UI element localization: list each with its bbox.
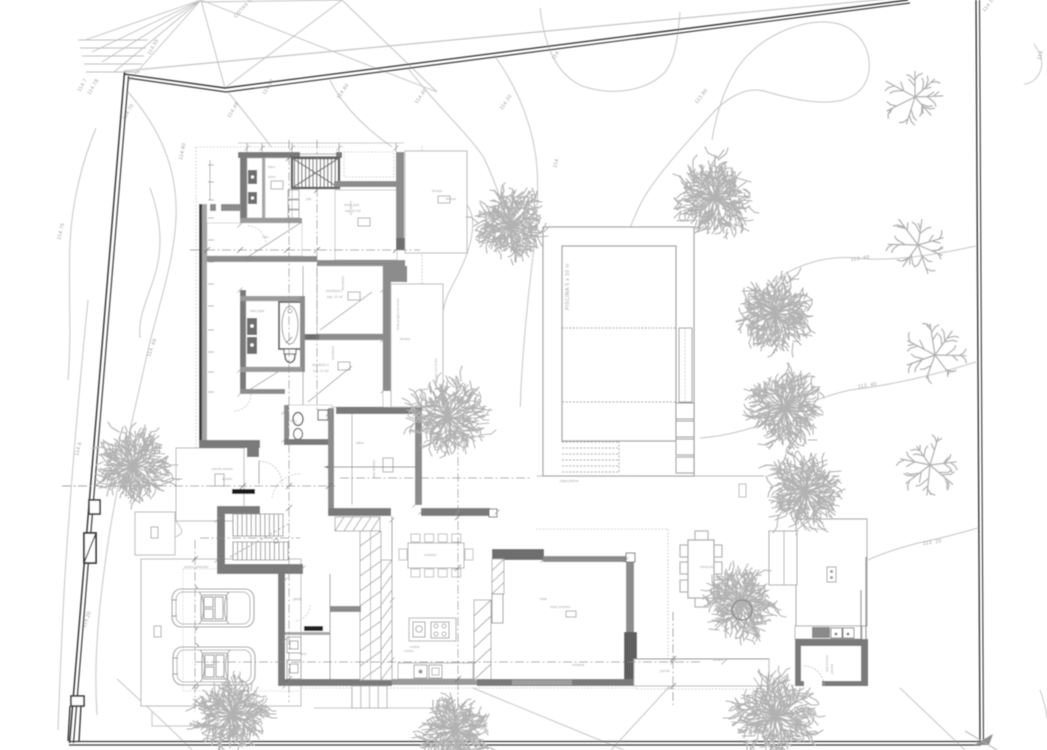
svg-text:terraza: terraza	[713, 658, 723, 662]
svg-text:garaje: garaje	[293, 597, 302, 601]
svg-text:cocina: cocina	[404, 649, 413, 653]
svg-text:dormitorio 2: dormitorio 2	[326, 289, 343, 293]
svg-text:salon: salon	[356, 441, 364, 445]
svg-text:linea proyeccion techo: linea proyeccion techo	[396, 298, 400, 330]
svg-text:pas.: pas.	[306, 197, 312, 201]
svg-text:estar: estar	[540, 597, 548, 601]
svg-text:terraza: terraza	[432, 189, 442, 193]
svg-text:zona bbq: zona bbq	[812, 527, 825, 531]
svg-text:acceso: acceso	[222, 477, 232, 481]
svg-text:cocina: cocina	[410, 645, 419, 649]
svg-text:lavd.: lavd.	[300, 652, 307, 656]
svg-text:bano ppal: bano ppal	[250, 309, 264, 313]
svg-text:piscina: piscina	[830, 664, 834, 674]
svg-text:estar comedor: estar comedor	[550, 605, 571, 609]
svg-text:dorm. ppal: dorm. ppal	[344, 203, 359, 207]
svg-text:terraza: terraza	[400, 337, 410, 341]
svg-text:terraza: terraza	[446, 197, 456, 201]
svg-text:PISCINA 5 x 10 m: PISCINA 5 x 10 m	[565, 263, 571, 310]
svg-text:dormitorio 3: dormitorio 3	[312, 363, 329, 367]
svg-text:mesa ext.: mesa ext.	[700, 565, 714, 569]
svg-text:sup. 12 m2: sup. 12 m2	[327, 295, 343, 299]
svg-text:dormitorio: dormitorio	[331, 346, 335, 360]
svg-text:sala de estar: sala de estar	[372, 459, 376, 478]
svg-text:dorm.: dorm.	[268, 175, 276, 179]
svg-text:porche: porche	[660, 669, 670, 673]
svg-text:aseo: aseo	[290, 419, 297, 423]
svg-text:comedor: comedor	[424, 553, 437, 557]
svg-text:porche acceso: porche acceso	[212, 467, 233, 471]
svg-text:dormitorio: dormitorio	[341, 276, 345, 290]
svg-text:sala tecnica: sala tecnica	[825, 655, 829, 672]
svg-text:acceso vehiculos: acceso vehiculos	[184, 565, 209, 569]
svg-text:sup. 14 m2: sup. 14 m2	[345, 209, 361, 213]
svg-text:playa piscina: playa piscina	[560, 479, 579, 483]
svg-text:bano: bano	[268, 165, 275, 169]
svg-text:vest.: vest.	[262, 235, 269, 239]
svg-text:ventanal: ventanal	[572, 663, 584, 667]
svg-text:sup. 12 m2: sup. 12 m2	[313, 369, 329, 373]
